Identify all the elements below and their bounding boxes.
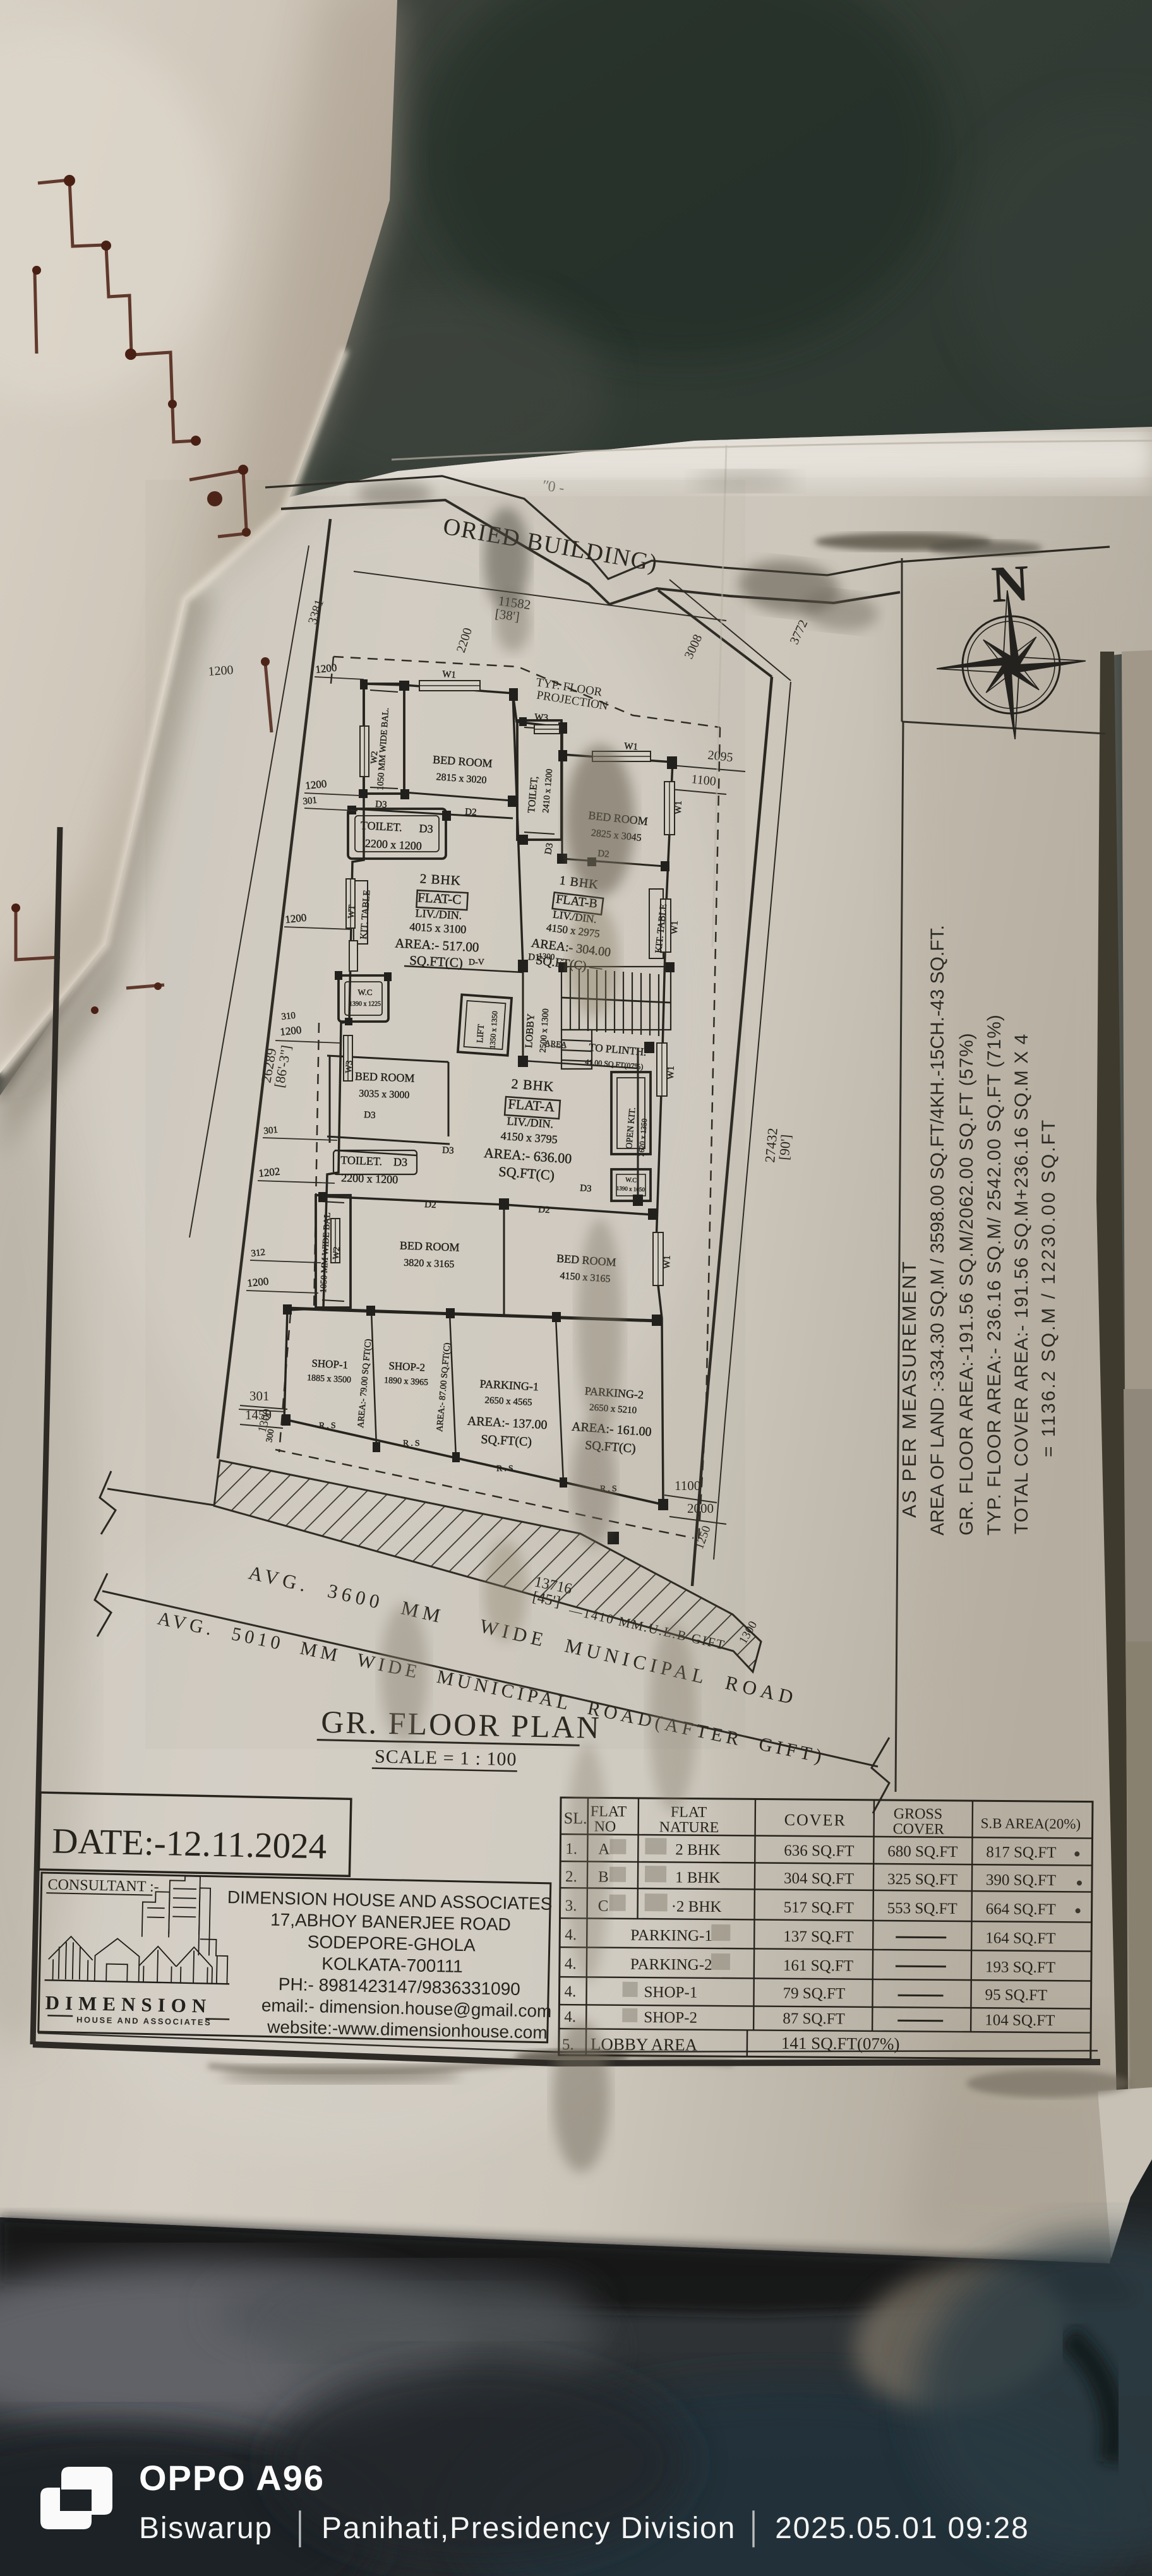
svg-text:SHOP-2: SHOP-2 [644,2009,697,2027]
svg-text:DIMENSION: DIMENSION [45,1991,212,2017]
svg-text:OPPO A96: OPPO A96 [139,2458,325,2498]
svg-text:AS PER MEASUREMENT: AS PER MEASUREMENT [898,1260,920,1518]
svg-text:Biswarup │ Panihati,Presidenc: Biswarup │ Panihati,Presidency Division … [139,2510,1029,2548]
svg-text:PARKING-2: PARKING-2 [630,1956,712,1974]
svg-text:= 1136.2 SQ.M / 12230.00 SQ.FT: = 1136.2 SQ.M / 12230.00 SQ.FT [1038,1118,1059,1457]
svg-text:CONSULTANT :-: CONSULTANT :- [47,1876,159,1895]
svg-text:[90']: [90'] [776,1134,794,1161]
svg-text:817 SQ.FT: 817 SQ.FT [986,1844,1056,1861]
svg-text:TYP. FLOOR AREA:- 236.16 SQ.M/: TYP. FLOOR AREA:- 236.16 SQ.M/ 2542.00 S… [984,1014,1005,1535]
svg-text:LOBBY AREA: LOBBY AREA [591,2034,698,2054]
svg-text:S.B AREA(20%): S.B AREA(20%) [981,1815,1081,1832]
svg-text:79 SQ.FT: 79 SQ.FT [783,1985,845,2003]
svg-text:COVER: COVER [893,1821,945,1838]
svg-text:N: N [990,554,1031,614]
svg-text:137 SQ.FT: 137 SQ.FT [783,1928,853,1946]
svg-text:161 SQ.FT: 161 SQ.FT [783,1957,853,1975]
svg-text:AREA OF LAND :-334.30 SQ.M / 3: AREA OF LAND :-334.30 SQ.M / 3598.00 SQ.… [927,925,948,1535]
svg-text:2 BHK: 2 BHK [675,1841,721,1859]
svg-text:4.: 4. [564,1983,576,2000]
svg-text:141 SQ.FT(07%): 141 SQ.FT(07%) [781,2034,900,2053]
svg-text:304 SQ.FT: 304 SQ.FT [784,1870,854,1888]
svg-text:636 SQ.FT: 636 SQ.FT [784,1842,854,1860]
svg-text:680 SQ.FT: 680 SQ.FT [887,1843,957,1861]
svg-text:SHOP-1: SHOP-1 [644,1984,697,2001]
svg-text:325 SQ.FT: 325 SQ.FT [887,1871,957,1888]
svg-text:TOTAL COVER AREA:- 191.56 SQ.M: TOTAL COVER AREA:- 191.56 SQ.M+236.16 SQ… [1011,1034,1032,1534]
svg-text:COVER: COVER [784,1811,846,1830]
svg-text:SODEPORE-GHOLA: SODEPORE-GHOLA [307,1932,476,1955]
svg-text:664 SQ.FT: 664 SQ.FT [986,1900,1056,1918]
svg-text:390 SQ.FT: 390 SQ.FT [986,1871,1056,1889]
svg-text:SCALE = 1 : 100: SCALE = 1 : 100 [375,1746,517,1770]
svg-text:104 SQ.FT: 104 SQ.FT [985,2012,1055,2029]
svg-text:GROSS: GROSS [894,1806,943,1823]
svg-text:PARKING-1: PARKING-1 [630,1927,712,1945]
svg-text:GR. FLOOR AREA:-191.56 SQ.M/20: GR. FLOOR AREA:-191.56 SQ.M/2062.00 SQ.F… [956,1032,977,1535]
svg-text:164 SQ.FT: 164 SQ.FT [985,1929,1055,1947]
svg-text:553 SQ.FT: 553 SQ.FT [887,1900,957,1917]
svg-text:DATE:-12.11.2024: DATE:-12.11.2024 [52,1821,327,1866]
svg-text:95 SQ.FT: 95 SQ.FT [985,1986,1047,2004]
svg-text:1 BHK: 1 BHK [675,1869,721,1887]
svg-text:193 SQ.FT: 193 SQ.FT [985,1959,1055,1976]
svg-text:·2 BHK: ·2 BHK [671,1898,722,1916]
svg-text:87 SQ.FT: 87 SQ.FT [783,2010,845,2028]
svg-text:KOLKATA-700111: KOLKATA-700111 [321,1953,463,1976]
svg-text:517 SQ.FT: 517 SQ.FT [784,1899,854,1917]
svg-text:NATURE: NATURE [659,1819,719,1836]
